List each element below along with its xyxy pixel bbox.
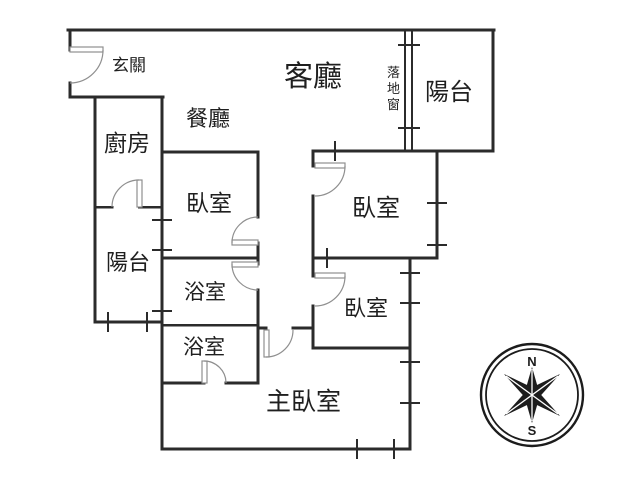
floorplan-svg: 玄關客廳落地窗陽台餐廳廚房臥室臥室陽台浴室臥室浴室主臥室NS [0,0,640,480]
bathroom-upper-door-leaf [232,262,258,267]
master-bedroom-door-leaf [264,330,269,357]
bedroom-lower-right-door-leaf [315,273,345,278]
room-label-bedroom-left: 臥室 [186,190,232,216]
room-label-balcony-top-right: 陽台 [425,79,473,106]
compass-north-label: N [527,354,536,369]
room-label-entry: 玄關 [112,56,146,75]
kitchen-door-leaf [137,180,142,207]
room-label-master-bedroom: 主臥室 [266,388,341,416]
bedroom-lower-right-door-swing-arc [315,276,345,306]
room-label-balcony-left: 陽台 [106,250,150,275]
bathroom-upper-door-swing-arc [232,264,258,290]
room-label-bedroom-lower-right: 臥室 [344,296,388,321]
room-label-bathroom-lower: 浴室 [183,336,225,359]
bedroom-upper-right-door-leaf [315,163,345,168]
kitchen-door-swing-arc [112,180,139,207]
compass-rose: NS [481,344,583,446]
room-label-bedroom-upper-right: 臥室 [352,195,400,222]
bedroom-left-door-leaf [232,240,258,245]
room-label-bathroom-upper: 浴室 [184,281,226,304]
master-bedroom-door-swing-arc [266,330,293,357]
floorplan-image: 玄關客廳落地窗陽台餐廳廚房臥室臥室陽台浴室臥室浴室主臥室NS [0,0,640,480]
room-label-sliding-glass-door: 落地窗 [387,65,400,112]
room-label-living-room: 客廳 [284,60,342,93]
room-label-dining-room: 餐廳 [186,106,230,131]
bedroom-left-door-swing-arc [232,217,258,243]
bedroom-upper-right-door-swing-arc [315,166,345,196]
bathroom-lower-door-leaf [202,361,207,383]
room-label-kitchen: 廚房 [104,130,150,156]
entry-door-swing-arc [70,50,103,83]
entry-door-leaf [70,47,103,52]
compass-south-label: S [528,423,537,438]
